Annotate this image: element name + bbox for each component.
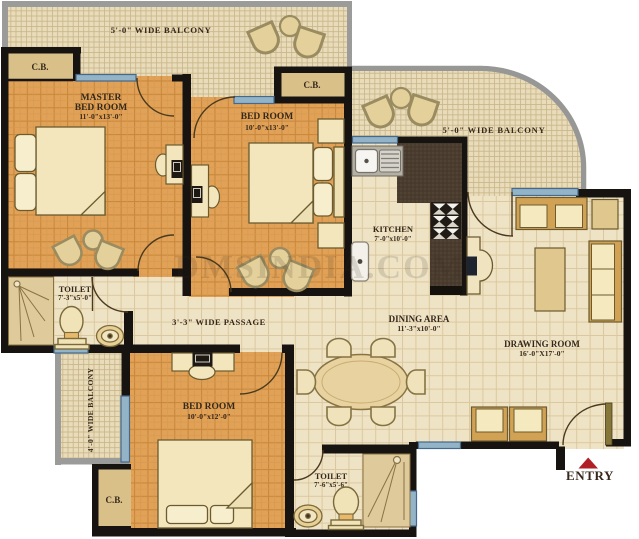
svg-text:C.B.: C.B.	[31, 62, 48, 72]
svg-text:KITCHEN: KITCHEN	[373, 224, 414, 234]
svg-text:TOILET: TOILET	[315, 471, 348, 481]
svg-text:10'-0"x13'-0": 10'-0"x13'-0"	[245, 123, 289, 132]
svg-text:3'-3" WIDE PASSAGE: 3'-3" WIDE PASSAGE	[172, 317, 266, 327]
svg-text:7'-3"x5'-0": 7'-3"x5'-0"	[58, 294, 92, 302]
svg-text:7'-0"x10'-0": 7'-0"x10'-0"	[374, 235, 411, 243]
svg-text:C.B.: C.B.	[105, 495, 122, 505]
svg-text:5'-0" WIDE BALCONY: 5'-0" WIDE BALCONY	[111, 25, 212, 35]
svg-text:BED ROOM: BED ROOM	[241, 112, 294, 122]
svg-text:MASTER: MASTER	[81, 93, 122, 103]
svg-text:DINING AREA: DINING AREA	[389, 314, 450, 324]
svg-text:16'-0"X17'-0": 16'-0"X17'-0"	[519, 349, 564, 358]
svg-text:10'-0"x12'-0": 10'-0"x12'-0"	[187, 412, 231, 421]
svg-text:DMSINDIA.COM: DMSINDIA.COM	[174, 249, 465, 286]
svg-text:TOILET: TOILET	[59, 284, 92, 294]
svg-text:DRAWING ROOM: DRAWING ROOM	[504, 339, 580, 349]
svg-text:BED ROOM: BED ROOM	[183, 402, 236, 412]
svg-text:7'-6"x5'-6": 7'-6"x5'-6"	[314, 481, 348, 489]
svg-text:11'-3"x10'-0": 11'-3"x10'-0"	[397, 324, 440, 333]
svg-text:ENTRY: ENTRY	[566, 468, 614, 483]
svg-text:C.B.: C.B.	[303, 80, 320, 90]
svg-text:4'-0" WIDE BALCONY: 4'-0" WIDE BALCONY	[86, 367, 95, 452]
svg-text:11'-0"x13'-0": 11'-0"x13'-0"	[79, 112, 122, 121]
svg-text:5'-0" WIDE BALCONY: 5'-0" WIDE BALCONY	[442, 125, 545, 135]
